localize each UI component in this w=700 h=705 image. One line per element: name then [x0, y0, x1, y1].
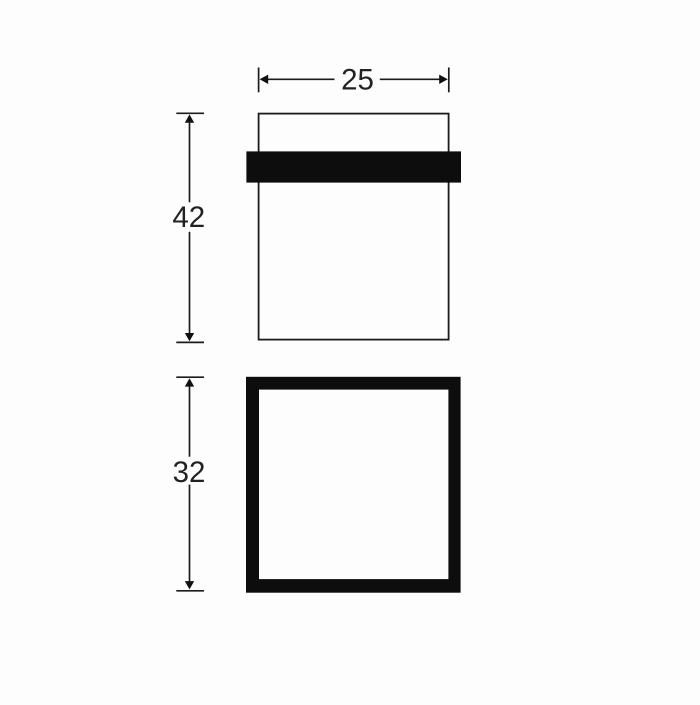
svg-text:25: 25: [341, 64, 374, 97]
svg-text:42: 42: [172, 201, 205, 234]
svg-text:32: 32: [173, 456, 206, 489]
